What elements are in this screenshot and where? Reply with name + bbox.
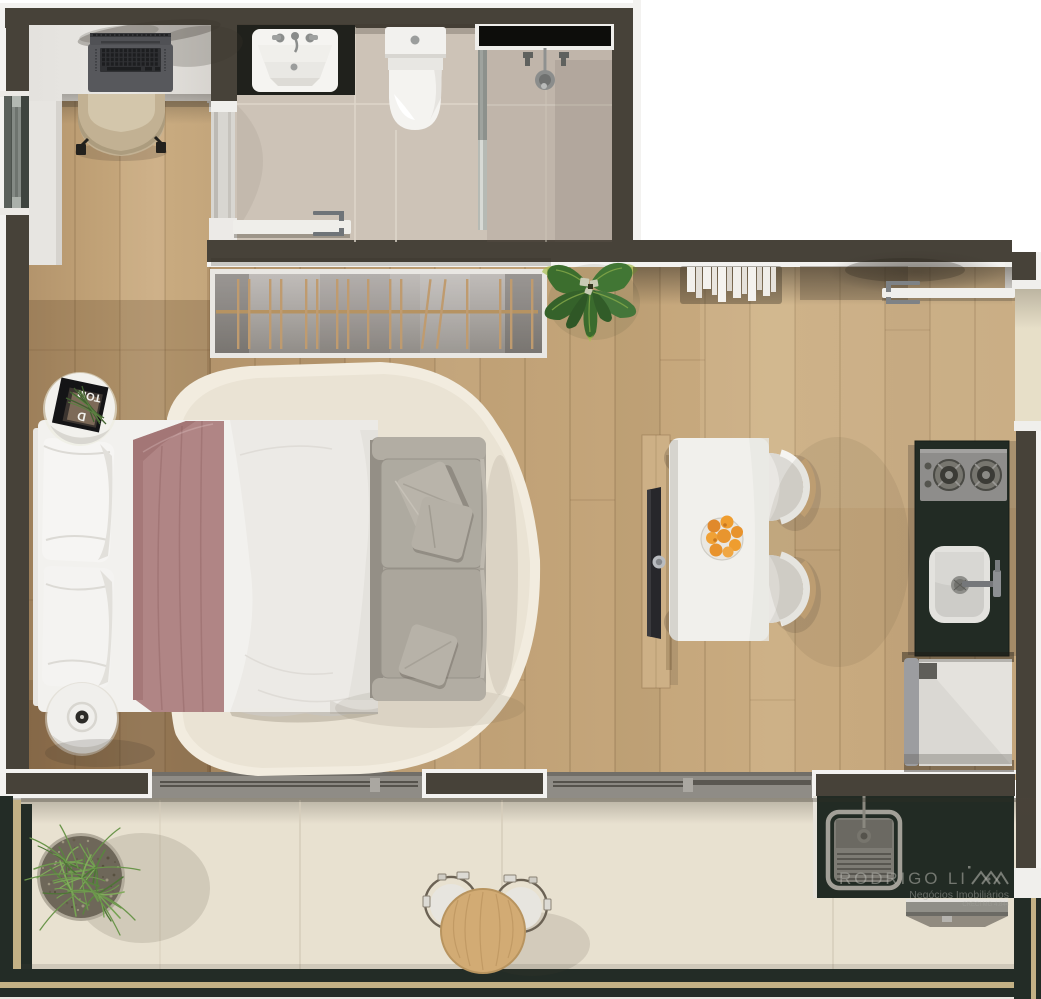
svg-text:CRECI MG 4.844: CRECI MG 4.844 [962, 902, 1009, 908]
svg-text:RODRIGO LI: RODRIGO LI [839, 869, 967, 888]
svg-text:Negócios Imobiliários: Negócios Imobiliários [909, 889, 1009, 901]
